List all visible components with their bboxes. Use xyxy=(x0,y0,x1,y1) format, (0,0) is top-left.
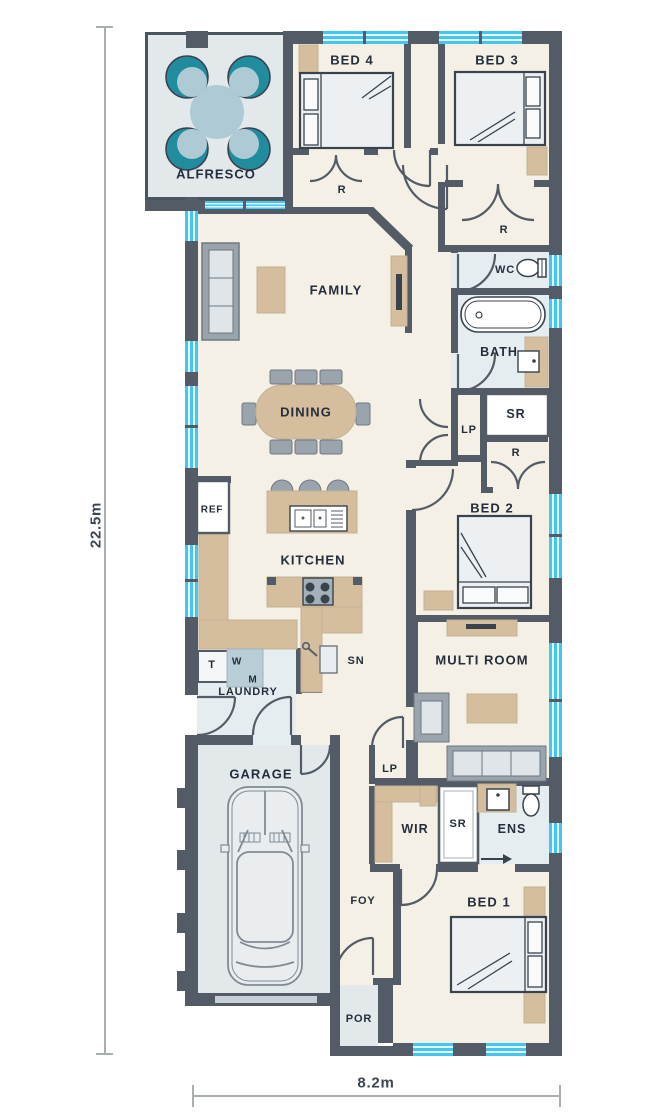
wall xyxy=(283,44,293,200)
wall xyxy=(406,510,416,622)
window-mullion xyxy=(549,534,562,537)
robe-label-bed4: R xyxy=(338,184,347,196)
room-label-garage: GARAGE xyxy=(229,767,292,782)
room-label-family: FAMILY xyxy=(310,283,363,298)
dimension-label-height: 22.5m xyxy=(88,502,105,548)
label-laundry-tub: T xyxy=(208,659,216,671)
wall-pier xyxy=(177,971,186,991)
room-label-bed1: BED 1 xyxy=(467,895,511,910)
room-label-multi: MULTI ROOM xyxy=(435,653,528,668)
wall xyxy=(291,735,301,745)
window xyxy=(185,341,198,372)
window xyxy=(549,823,562,853)
dimension-tick xyxy=(96,1053,113,1055)
room-label-alfresco: ALFRESCO xyxy=(176,167,256,182)
label-linen-foyer: LP xyxy=(382,763,398,775)
room-label-bed4: BED 4 xyxy=(330,53,374,68)
wall xyxy=(330,1046,393,1056)
room-label-bath: BATH xyxy=(480,345,518,359)
wall xyxy=(534,180,549,187)
wall xyxy=(393,872,401,985)
room-label-ens: ENS xyxy=(498,822,527,836)
wall xyxy=(486,436,548,442)
label-washer: W xyxy=(232,657,242,668)
window-mullion xyxy=(243,201,246,209)
robe-label-bed2: R xyxy=(512,447,521,459)
wall-pier xyxy=(177,913,186,933)
wall xyxy=(404,44,411,148)
room-label-kitchen: KITCHEN xyxy=(280,553,345,568)
room-label-study-nook: SN xyxy=(347,655,364,667)
window xyxy=(549,255,562,286)
wall xyxy=(405,247,412,333)
alfresco-pillar xyxy=(186,31,208,48)
floor-plan: ALFRESCO BED 4 BED 3 R R WC BATH SR LP R… xyxy=(0,0,672,1117)
window xyxy=(486,1043,526,1056)
wall xyxy=(369,786,375,864)
wall xyxy=(373,978,393,985)
wall xyxy=(451,245,458,253)
wall xyxy=(445,180,463,187)
wall xyxy=(197,476,231,483)
room-label-foyer: FOY xyxy=(350,895,375,907)
window xyxy=(549,299,562,328)
wall xyxy=(406,615,552,622)
wall xyxy=(330,735,340,1046)
dimension-tick xyxy=(96,26,113,28)
wall xyxy=(451,288,549,295)
wall xyxy=(369,745,375,784)
window-mullion xyxy=(479,31,482,44)
wall xyxy=(375,778,549,786)
window-mullion xyxy=(185,579,198,582)
window-mullion xyxy=(185,425,198,428)
label-fridge: REF xyxy=(201,505,223,516)
wall xyxy=(406,740,418,782)
dimension-tick xyxy=(192,1085,194,1107)
label-dryer: M xyxy=(248,675,257,686)
dimension-line-horizontal xyxy=(193,1095,561,1097)
wall xyxy=(451,391,458,460)
wall-pier xyxy=(177,850,186,870)
wall xyxy=(451,388,549,395)
wall xyxy=(378,985,393,1043)
robe-label-bed3: R xyxy=(500,224,509,236)
room-label-bed2: BED 2 xyxy=(470,501,514,516)
wall xyxy=(436,864,478,872)
wall xyxy=(481,436,487,493)
wall xyxy=(406,460,416,468)
label-store-hall: SR xyxy=(506,407,525,421)
wall xyxy=(438,182,445,252)
room-label-laundry: LAUNDRY xyxy=(218,686,278,698)
window xyxy=(413,1043,453,1056)
wall xyxy=(515,864,549,872)
label-shower-ens: SR xyxy=(449,818,466,830)
room-label-wc: WC xyxy=(495,264,515,276)
wall xyxy=(185,735,253,745)
garage-door xyxy=(215,996,317,1003)
wall xyxy=(293,148,309,155)
dimension-label-width: 8.2m xyxy=(357,1075,394,1092)
wall xyxy=(438,44,445,144)
wall xyxy=(430,148,438,155)
window xyxy=(185,211,198,241)
wall xyxy=(370,864,400,872)
wall xyxy=(185,775,198,1006)
wall xyxy=(406,622,418,707)
room-label-dining: DINING xyxy=(280,405,332,420)
floor-garage xyxy=(197,745,330,993)
wall xyxy=(364,148,378,155)
wall xyxy=(481,487,493,493)
wall xyxy=(451,295,458,353)
room-label-porch: POR xyxy=(346,1013,372,1025)
label-linen-hall: LP xyxy=(461,424,477,436)
wall xyxy=(298,684,322,693)
window-mullion xyxy=(363,31,366,44)
room-label-wir: WIR xyxy=(401,822,428,836)
wall-pier xyxy=(177,788,186,808)
dimension-tick xyxy=(559,1085,561,1107)
window-mullion xyxy=(549,699,562,702)
room-label-bed3: BED 3 xyxy=(475,53,519,68)
